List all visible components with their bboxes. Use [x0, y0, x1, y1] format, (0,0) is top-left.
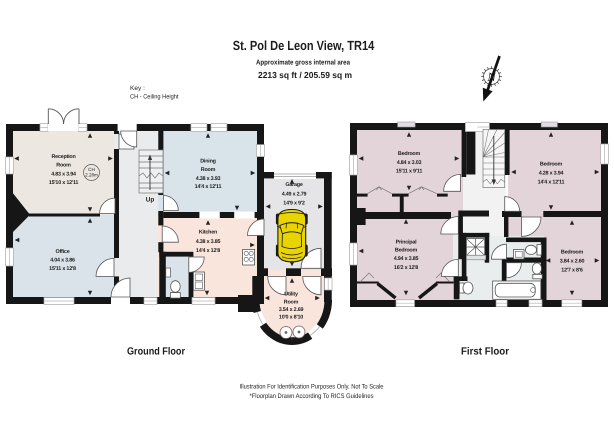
- svg-text:*Floorplan Drawn According To: *Floorplan Drawn According To RICS Guide…: [250, 393, 375, 400]
- svg-text:Approximate gross internal are: Approximate gross internal area: [256, 59, 350, 67]
- svg-text:CH: CH: [88, 167, 95, 172]
- svg-text:4.84 x 3.03: 4.84 x 3.03: [397, 160, 422, 166]
- svg-text:Illustration For Identificatio: Illustration For Identification Purposes…: [240, 384, 384, 391]
- svg-text:CH - Ceiling Height: CH - Ceiling Height: [130, 93, 179, 100]
- svg-text:15'11 x 12'8: 15'11 x 12'8: [49, 266, 76, 272]
- svg-text:2.28m: 2.28m: [85, 173, 98, 178]
- svg-text:15'11 x 9'11: 15'11 x 9'11: [396, 169, 423, 175]
- svg-text:Principal: Principal: [396, 240, 418, 246]
- svg-text:Bedroom: Bedroom: [398, 151, 421, 157]
- svg-text:Key :: Key :: [130, 85, 145, 92]
- svg-text:Dining: Dining: [200, 159, 215, 165]
- svg-text:Room: Room: [201, 167, 216, 173]
- svg-text:Garage: Garage: [285, 182, 302, 188]
- svg-text:Ground Floor: Ground Floor: [127, 347, 185, 358]
- svg-text:14'4 x 12'11: 14'4 x 12'11: [195, 184, 222, 190]
- svg-text:4.49 x 2.79: 4.49 x 2.79: [282, 191, 307, 197]
- svg-text:Kitchen: Kitchen: [199, 230, 217, 236]
- svg-text:2213 sq ft / 205.59 sq m: 2213 sq ft / 205.59 sq m: [258, 70, 352, 80]
- svg-text:N: N: [486, 70, 496, 84]
- svg-text:16'2 x 12'8: 16'2 x 12'8: [394, 265, 418, 271]
- svg-text:14'4 x 12'8: 14'4 x 12'8: [196, 248, 220, 254]
- svg-text:Bedroom: Bedroom: [540, 162, 563, 168]
- svg-text:Bedroom: Bedroom: [561, 250, 584, 256]
- svg-text:Up: Up: [146, 197, 155, 204]
- svg-text:4.83 x 3.94: 4.83 x 3.94: [51, 172, 76, 178]
- svg-text:4.28 x 3.94: 4.28 x 3.94: [539, 171, 564, 177]
- svg-text:Reception: Reception: [51, 154, 75, 160]
- svg-text:14'4 x 12'11: 14'4 x 12'11: [538, 179, 565, 185]
- svg-text:4.94 x 3.85: 4.94 x 3.85: [394, 256, 419, 262]
- svg-text:10'0 x 8'10: 10'0 x 8'10: [279, 315, 303, 321]
- svg-text:Utility: Utility: [284, 292, 298, 298]
- svg-text:3.54 x 2.69: 3.54 x 2.69: [279, 307, 304, 313]
- svg-text:Room: Room: [284, 300, 299, 306]
- svg-text:3.84 x 2.60: 3.84 x 2.60: [560, 259, 585, 265]
- svg-text:Bedroom: Bedroom: [395, 248, 418, 254]
- svg-text:4.38 x 3.85: 4.38 x 3.85: [196, 239, 221, 245]
- svg-text:Office: Office: [56, 249, 70, 255]
- svg-text:4.38 x 3.93: 4.38 x 3.93: [196, 176, 221, 182]
- svg-text:4.04 x 3.86: 4.04 x 3.86: [50, 258, 75, 264]
- svg-text:15'10 x 12'11: 15'10 x 12'11: [49, 180, 79, 186]
- svg-text:12'7 x 8'6: 12'7 x 8'6: [561, 268, 583, 274]
- svg-text:First Floor: First Floor: [461, 347, 509, 358]
- svg-text:14'9 x 9'2: 14'9 x 9'2: [283, 201, 305, 207]
- svg-text:St. Pol De Leon View, TR14: St. Pol De Leon View, TR14: [233, 38, 375, 53]
- svg-text:Room: Room: [56, 163, 71, 169]
